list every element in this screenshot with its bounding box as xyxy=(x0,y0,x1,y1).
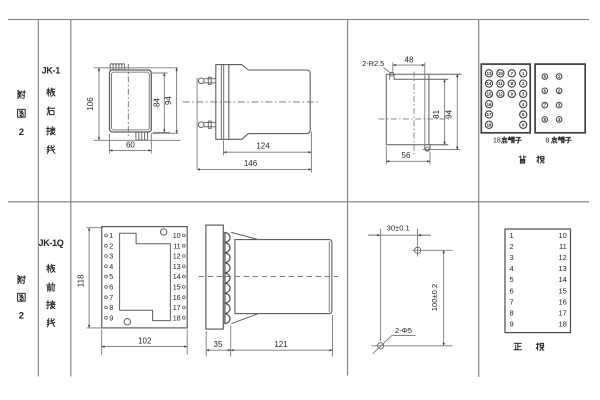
svg-text:4: 4 xyxy=(558,117,561,122)
svg-text:12: 12 xyxy=(173,252,181,261)
svg-text:2: 2 xyxy=(558,88,561,93)
svg-text:102: 102 xyxy=(138,336,152,345)
svg-text:35: 35 xyxy=(214,340,223,349)
svg-text:8: 8 xyxy=(109,303,113,312)
svg-text:9: 9 xyxy=(510,319,514,328)
svg-text:5: 5 xyxy=(522,112,525,117)
svg-text:2-R2.5: 2-R2.5 xyxy=(362,59,384,68)
svg-text:100±0.2: 100±0.2 xyxy=(430,284,439,311)
svg-text:6: 6 xyxy=(510,286,514,295)
svg-text:6: 6 xyxy=(522,122,525,127)
svg-text:18: 18 xyxy=(173,313,181,322)
svg-text:121: 121 xyxy=(274,340,288,349)
svg-text:14: 14 xyxy=(173,272,181,281)
svg-text:106: 106 xyxy=(86,97,95,111)
svg-text:JK-1Q: JK-1Q xyxy=(38,238,63,248)
svg-text:2: 2 xyxy=(109,241,113,250)
svg-text:10: 10 xyxy=(558,231,566,240)
svg-text:56: 56 xyxy=(402,151,411,160)
svg-text:10: 10 xyxy=(498,71,503,76)
svg-text:13: 13 xyxy=(173,262,181,271)
svg-text:118: 118 xyxy=(77,274,86,287)
svg-text:8: 8 xyxy=(544,117,547,122)
svg-text:13: 13 xyxy=(487,71,492,76)
svg-text:2: 2 xyxy=(19,310,24,321)
svg-text:14: 14 xyxy=(487,81,492,86)
svg-text:17: 17 xyxy=(487,112,492,117)
svg-text:16: 16 xyxy=(558,297,566,306)
svg-text:48: 48 xyxy=(405,55,414,64)
svg-text:94: 94 xyxy=(444,109,453,118)
svg-text:18: 18 xyxy=(487,122,492,127)
svg-text:5: 5 xyxy=(109,272,113,281)
svg-text:6: 6 xyxy=(109,283,113,292)
svg-text:17: 17 xyxy=(558,308,566,317)
svg-text:2-Φ5: 2-Φ5 xyxy=(395,326,412,335)
svg-text:81: 81 xyxy=(432,109,441,118)
svg-text:11: 11 xyxy=(559,242,567,251)
svg-text:15: 15 xyxy=(487,92,492,97)
svg-text:17: 17 xyxy=(173,303,181,312)
svg-text:8: 8 xyxy=(511,81,514,86)
svg-text:30±0.1: 30±0.1 xyxy=(387,224,410,233)
svg-text:15: 15 xyxy=(558,286,566,295)
svg-text:2: 2 xyxy=(510,242,514,251)
svg-text:14: 14 xyxy=(558,275,566,284)
svg-text:4: 4 xyxy=(109,262,113,271)
svg-text:146: 146 xyxy=(244,159,258,168)
svg-text:1: 1 xyxy=(522,71,525,76)
svg-text:JK-1: JK-1 xyxy=(42,66,61,76)
svg-text:10: 10 xyxy=(173,231,181,240)
svg-text:5: 5 xyxy=(510,275,514,284)
svg-text:13: 13 xyxy=(558,264,566,273)
svg-text:12: 12 xyxy=(498,92,503,97)
svg-text:4: 4 xyxy=(510,264,514,273)
svg-text:3: 3 xyxy=(522,92,525,97)
svg-text:9: 9 xyxy=(109,313,113,322)
svg-text:124: 124 xyxy=(256,142,270,151)
svg-text:7: 7 xyxy=(510,297,514,306)
svg-text:9: 9 xyxy=(511,92,514,97)
svg-text:7: 7 xyxy=(544,103,547,108)
svg-text:1: 1 xyxy=(510,231,514,240)
svg-text:1: 1 xyxy=(558,74,561,79)
svg-text:4: 4 xyxy=(522,102,525,107)
svg-text:5: 5 xyxy=(544,74,547,79)
svg-text:8: 8 xyxy=(510,308,514,317)
svg-text:1: 1 xyxy=(109,231,113,240)
svg-text:2: 2 xyxy=(19,127,24,138)
svg-text:15: 15 xyxy=(173,283,181,292)
svg-text:7: 7 xyxy=(109,293,113,302)
svg-text:16: 16 xyxy=(173,293,181,302)
svg-text:6: 6 xyxy=(544,88,547,93)
svg-text:18: 18 xyxy=(493,137,501,144)
svg-text:3: 3 xyxy=(109,252,113,261)
svg-text:60: 60 xyxy=(126,140,135,149)
svg-text:11: 11 xyxy=(498,81,503,86)
svg-text:3: 3 xyxy=(558,103,561,108)
svg-text:2: 2 xyxy=(522,81,525,86)
svg-text:3: 3 xyxy=(510,253,514,262)
svg-text:11: 11 xyxy=(173,241,180,250)
svg-text:94: 94 xyxy=(164,96,173,105)
svg-text:16: 16 xyxy=(487,102,492,107)
svg-text:84: 84 xyxy=(153,98,162,107)
svg-text:7: 7 xyxy=(511,71,514,76)
svg-text:18: 18 xyxy=(558,319,566,328)
svg-text:12: 12 xyxy=(558,253,566,262)
svg-text:8: 8 xyxy=(546,137,550,144)
